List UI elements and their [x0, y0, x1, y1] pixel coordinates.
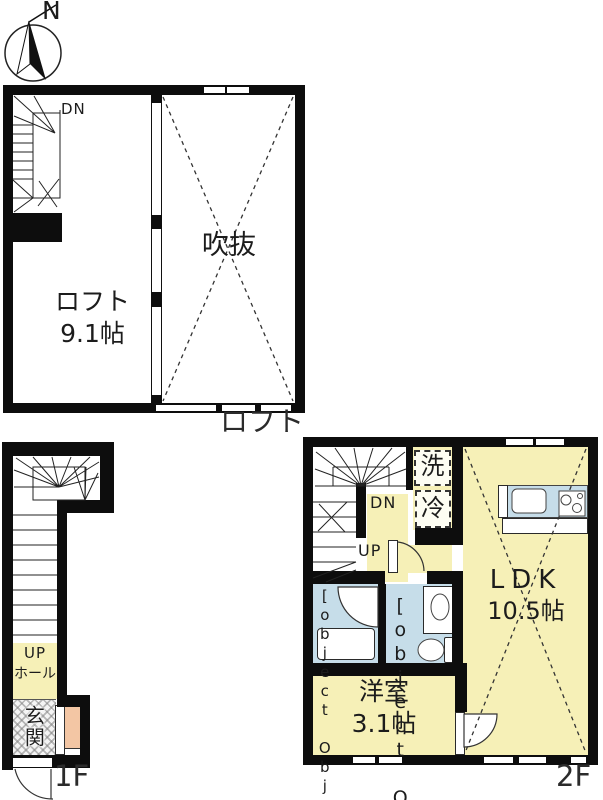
loft-room-name: ロフト	[40, 288, 145, 316]
bathroom-label: [object Object]	[316, 587, 333, 631]
loft-stairs-dn-label: DN	[61, 101, 86, 118]
entrance-label: 玄関	[22, 705, 44, 755]
fridge-label: 冷	[415, 495, 451, 522]
linework-layer	[0, 0, 603, 800]
first-floor-up-label: UP	[13, 645, 57, 662]
western-room-area: 3.1帖	[313, 710, 455, 738]
second-floor-stairs	[313, 448, 406, 582]
toilet-bowl	[418, 639, 444, 661]
washbasin-bowl	[431, 594, 449, 620]
second-floor-up-label: UP	[358, 542, 381, 560]
second-floor-dn-label: DN	[370, 494, 396, 512]
loft-floor-label: ロフト	[220, 406, 304, 437]
stove	[559, 491, 585, 516]
compass-north-label: N	[42, 0, 61, 25]
second-floor-label: 2F	[556, 760, 591, 792]
bath-door-swing	[338, 587, 378, 627]
loft-stairs	[13, 96, 60, 212]
entrance-door-swing	[15, 769, 53, 799]
first-floor-label: 1F	[54, 760, 89, 792]
hall-door-swing	[398, 542, 424, 571]
floorplan-canvas: N DN ロフト 9.1帖 吹抜 ロフト UP ホール 玄関 1F DN UP …	[0, 0, 603, 800]
kitchen-sink	[512, 489, 546, 513]
washer-label: 洗	[414, 453, 451, 480]
first-floor-hall-label: ホール	[12, 667, 58, 683]
ldk-name: LDK	[463, 566, 589, 595]
ldk-area: 10.5帖	[463, 598, 589, 625]
loft-room-area: 9.1帖	[40, 320, 145, 348]
washroom-label: [object Object]	[389, 595, 410, 651]
western-room-name: 洋室	[313, 678, 455, 706]
void-room-name: 吹抜	[170, 231, 288, 261]
first-floor-stairs	[13, 457, 99, 635]
